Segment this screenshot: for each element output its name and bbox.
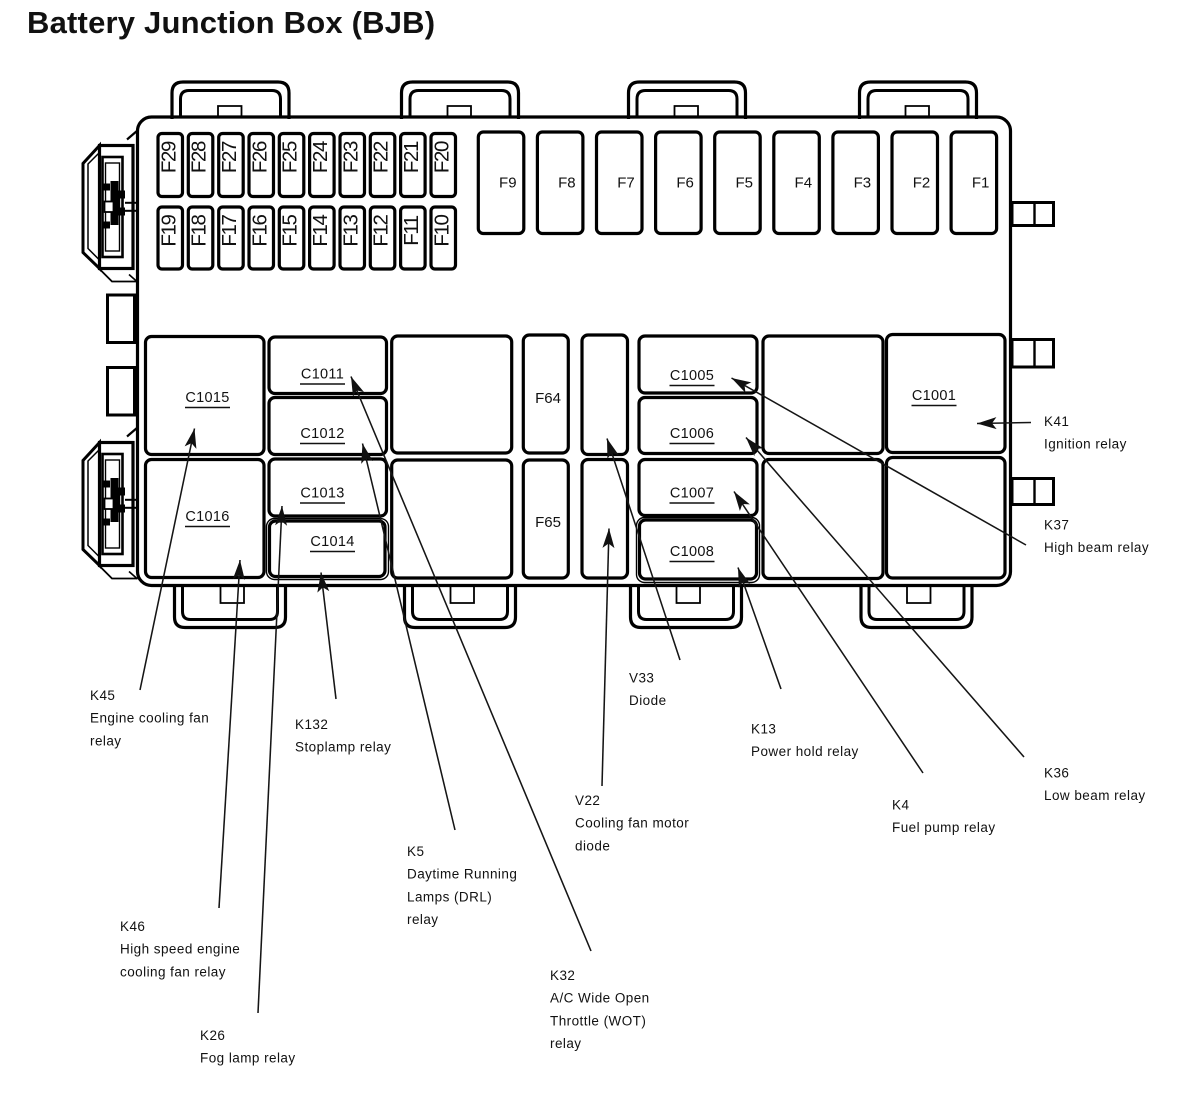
svg-text:F28: F28 [188, 141, 211, 173]
svg-text:F1: F1 [972, 175, 990, 192]
svg-text:F20: F20 [430, 141, 453, 173]
svg-text:F13: F13 [339, 214, 362, 246]
svg-text:C1011: C1011 [301, 367, 344, 383]
svg-text:F2: F2 [913, 175, 931, 192]
svg-text:F17: F17 [218, 214, 241, 246]
svg-text:C1001: C1001 [912, 388, 956, 404]
svg-text:F65: F65 [535, 514, 561, 531]
svg-text:F24: F24 [309, 141, 332, 173]
svg-text:F7: F7 [617, 175, 635, 192]
svg-text:C1006: C1006 [670, 426, 714, 442]
svg-text:F9: F9 [499, 175, 517, 192]
svg-text:F19: F19 [157, 214, 180, 246]
svg-text:F8: F8 [558, 175, 576, 192]
svg-text:C1007: C1007 [670, 486, 714, 502]
svg-text:F5: F5 [735, 175, 753, 192]
svg-text:F26: F26 [248, 141, 271, 173]
svg-text:C1015: C1015 [185, 390, 229, 406]
svg-text:F15: F15 [279, 214, 302, 246]
svg-text:C1014: C1014 [310, 534, 354, 550]
svg-text:F21: F21 [400, 141, 423, 173]
svg-text:F16: F16 [248, 214, 271, 246]
svg-text:F14: F14 [309, 214, 332, 246]
svg-text:F23: F23 [339, 141, 362, 173]
svg-text:F29: F29 [157, 141, 180, 173]
svg-text:C1005: C1005 [670, 368, 714, 384]
svg-text:F4: F4 [795, 175, 813, 192]
svg-text:F10: F10 [430, 214, 453, 246]
svg-text:F25: F25 [279, 141, 302, 173]
svg-text:C1012: C1012 [300, 426, 344, 442]
svg-text:C1008: C1008 [670, 544, 714, 560]
svg-text:F3: F3 [854, 175, 872, 192]
svg-text:C1013: C1013 [300, 486, 344, 502]
svg-text:F6: F6 [676, 175, 694, 192]
svg-text:C1016: C1016 [185, 509, 229, 525]
svg-text:F11: F11 [400, 215, 423, 246]
svg-text:F64: F64 [535, 390, 561, 407]
svg-text:F27: F27 [218, 141, 241, 173]
svg-text:F22: F22 [370, 141, 393, 173]
svg-text:Battery Junction Box (BJB): Battery Junction Box (BJB) [27, 5, 435, 40]
svg-text:F18: F18 [188, 214, 211, 246]
svg-text:F12: F12 [370, 214, 393, 246]
